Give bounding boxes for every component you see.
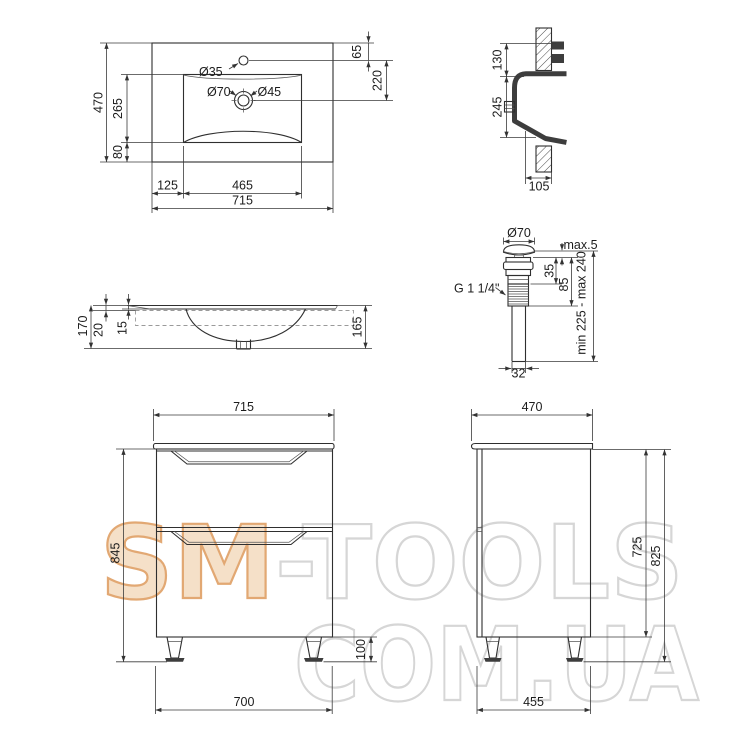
dim-cabinet-body-height: 845 [109,543,123,564]
watermark-line2: COM.UA [294,606,699,725]
dim-overall-width: 715 [232,194,253,208]
dim-back-height: 130 [491,50,505,71]
dim-pipe-dia: 32 [512,367,526,381]
countertop-side [472,444,593,450]
dim-side-body-height: 725 [631,537,645,558]
dim-bowl-depth: 265 [111,98,125,119]
valve-pipe [512,306,526,362]
bowl-profile-curve [186,309,306,342]
dim-flange-height: 35 [543,264,557,278]
dim-rim-drop: 20 [92,323,106,337]
view-drain-valve: Ø70 max.5 35 85 min 225 - max 240 G 1 1/… [454,226,598,381]
wall-lower [536,146,552,172]
dim-tap-hole-dia: Ø35 [199,65,223,79]
dim-bowl-width: 465 [232,179,253,193]
watermark-sm: SM [100,504,275,623]
watermark: SM-TOOLS COM.UA [100,504,699,724]
dim-drain-outer-dia: Ø70 [207,85,231,99]
mounting-frame-hidden [136,311,354,326]
dim-bowl-height: 245 [491,97,505,118]
view-washbasin-section: 130 245 105 [491,28,565,194]
countertop-front [154,444,335,450]
bowl-outline [184,75,302,143]
view-washbasin-front: 170 20 15 165 [76,294,372,349]
dim-front-margin: 80 [111,145,125,159]
dim-drain-offset: 220 [371,70,385,91]
dim-thread-label: G 1 1/4" [454,282,499,296]
dim-drain-inner-dia: Ø45 [258,85,282,99]
tap-hole [239,56,248,65]
valve-thread [508,284,529,306]
dim-leg-height: 100 [354,639,368,660]
drain-hole-outer [235,92,253,110]
dim-tap-hole-offset: 65 [350,45,364,59]
drain-hole-ticks [232,89,256,113]
dim-edge-thickness: 15 [116,321,130,335]
dim-valve-total-height: min 225 - max 240 [575,251,589,355]
mount-bracket-lower [552,54,565,63]
dim-valve-body-height: 85 [557,278,571,292]
dim-cabinet-bottom-depth: 455 [523,695,544,709]
dim-cap-dia: Ø70 [507,226,531,240]
dim-bottom-projection: 105 [529,180,550,194]
view-washbasin-top: 470 265 80 65 220 Ø35 Ø70 Ø45 125 465 71… [92,32,394,214]
dim-profile-bowl-height: 165 [351,317,365,338]
valve-flange [504,258,534,285]
mount-bracket-upper [552,42,565,50]
dim-side-total-height: 825 [649,546,663,567]
drain-hole-inner [238,95,249,106]
wall-upper [536,28,552,71]
bowl-front-curve [184,131,302,142]
leg-front-left [165,637,185,662]
dim-profile-total-height: 170 [76,316,90,337]
dim-cabinet-top-depth: 470 [522,400,543,414]
technical-drawing-sheet: SM-TOOLS COM.UA [0,0,750,750]
drawing-canvas: SM-TOOLS COM.UA [0,0,750,750]
dim-bowl-offset-left: 125 [157,179,178,193]
dim-cap-gap: max.5 [564,238,598,252]
dim-cabinet-bottom-width: 700 [234,695,255,709]
dim-cabinet-top-width: 715 [233,400,254,414]
dim-overall-depth: 470 [92,92,106,113]
basin-section-profile [515,74,565,142]
